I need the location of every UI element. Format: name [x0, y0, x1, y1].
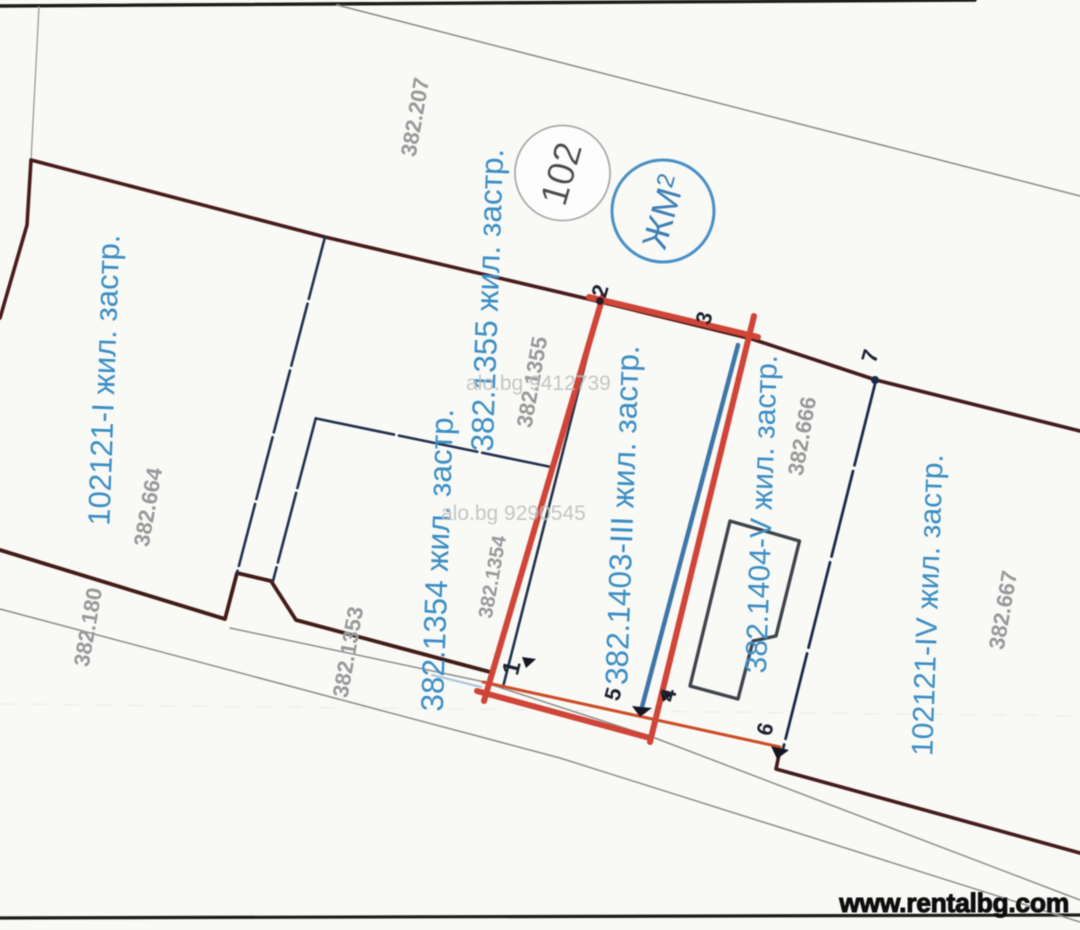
svg-text:alo.bg 9412739: alo.bg 9412739	[466, 372, 611, 395]
svg-text:alo.bg 9290545: alo.bg 9290545	[441, 502, 586, 525]
svg-text:www.rentalbg.com: www.rentalbg.com	[838, 888, 1069, 918]
